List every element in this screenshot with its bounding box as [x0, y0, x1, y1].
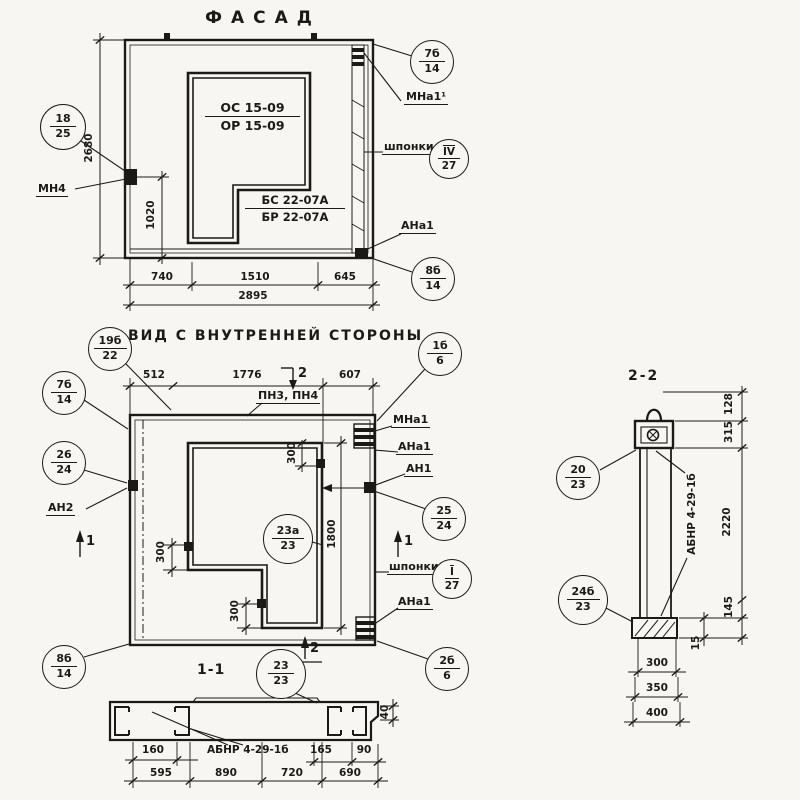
dim-s11-40: 40 [379, 698, 391, 726]
callout-23a-23: 23а 23 [263, 514, 313, 564]
label-pn3-pn4: ПН3, ПН4 [256, 390, 320, 404]
callout-2b-6: 2б 6 [425, 647, 469, 691]
lifting-loop-mark [311, 33, 317, 40]
an1-anchor-mark [364, 482, 374, 493]
label-mn4: МН4 [36, 183, 68, 197]
dim-inner-607: 607 [328, 369, 372, 381]
drawing-sheet: ФАСАД ОС 15-09 ОР 15-09 БС 22-07А БР 22-… [0, 0, 800, 800]
mark-bs: БС 22-07А [245, 193, 345, 209]
label-ana1-facade: АНа1 [399, 220, 436, 234]
dim-s11-160: 160 [136, 744, 170, 756]
dim-inner-300a: 300 [286, 437, 298, 469]
dim-s22-400: 400 [637, 707, 677, 719]
mark-br: БР 22-07А [245, 209, 345, 224]
section-mark-1-right: 1 [404, 534, 413, 549]
label-ana1-bottom-inner: АНа1 [396, 596, 433, 610]
section-22-title: 2-2 [628, 368, 659, 384]
section-11-title: 1-1 [197, 662, 225, 678]
inner-dimension-lines [123, 378, 380, 635]
callout-19b-22: 19б 22 [88, 327, 132, 371]
inner-leader-lines [84, 364, 428, 659]
label-mna1-sup: МНа1¹ [404, 91, 448, 105]
dim-facade-740: 740 [142, 271, 182, 283]
callout-24b-23: 24б 23 [558, 575, 608, 625]
label-abnr-s11: АБНР 4-29-1б [207, 745, 289, 757]
opening-mark-bs-br: БС 22-07А БР 22-07А [245, 193, 345, 224]
dim-s11-690: 690 [330, 767, 370, 779]
opening-mark-os-or: ОС 15-09 ОР 15-09 [205, 100, 300, 133]
section-11-geometry [110, 693, 378, 745]
lifting-loop-mark [164, 33, 170, 40]
anchor-mark [184, 542, 193, 551]
callout-keys-inner: I 27 [432, 559, 472, 599]
label-ana1-top-inner: АНа1 [396, 441, 433, 455]
dim-facade-645: 645 [323, 271, 367, 283]
mark-os: ОС 15-09 [205, 100, 300, 117]
callout-23-23: 23 23 [256, 649, 306, 699]
drawing-geometry [0, 0, 800, 800]
dim-s11-890: 890 [206, 767, 246, 779]
inner-view-title: ВИД С ВНУТРЕННЕЙ СТОРОНЫ [128, 328, 428, 344]
section-mark-2-bottom: 2 [310, 641, 319, 656]
dim-s11-595: 595 [141, 767, 181, 779]
dim-facade-2895: 2895 [228, 290, 278, 302]
label-shponki-facade: шпонки [382, 141, 436, 155]
facade-title: ФАСАД [198, 8, 328, 28]
label-an2: АН2 [46, 502, 75, 516]
dim-s11-165: 165 [304, 744, 338, 756]
callout-8b-14-facade: 8б 14 [411, 257, 455, 301]
label-mna1-inner: МНа1 [391, 414, 430, 428]
mark-or: ОР 15-09 [205, 117, 300, 133]
callout-7b-14-inner: 7б 14 [42, 371, 86, 415]
section-mark-1-left: 1 [86, 534, 95, 549]
dim-inner-512: 512 [134, 369, 174, 381]
anchor-mark [257, 599, 266, 608]
dim-facade-1510: 1510 [230, 271, 280, 283]
dim-inner-1776: 1776 [222, 369, 272, 381]
an2-anchor-mark [128, 480, 138, 491]
dim-s11-90: 90 [350, 744, 378, 756]
label-abnr-s22: АБНР 4-29-1б [686, 459, 698, 569]
section-22-geometry [600, 410, 687, 638]
dim-inner-300c: 300 [229, 595, 241, 627]
dim-inner-1800: 1800 [326, 512, 338, 556]
dim-s22-145: 145 [723, 591, 735, 623]
callout-8b-14-inner: 8б 14 [42, 645, 86, 689]
dim-s22-15: 15 [690, 629, 702, 657]
dim-inner-300b: 300 [155, 536, 167, 568]
callout-25-24: 25 24 [422, 497, 466, 541]
callout-20-23: 20 23 [556, 456, 600, 500]
mn4-anchor-mark [126, 169, 137, 185]
callout-keys-facade: IV 27 [429, 139, 469, 179]
callout-7b-14-facade: 7б 14 [410, 40, 454, 84]
dim-s22-350: 350 [638, 682, 676, 694]
dim-s22-2220: 2220 [721, 500, 733, 544]
callout-1b-6: 1б 6 [418, 332, 462, 376]
callout-18-25: 18 25 [40, 104, 86, 150]
label-an1: АН1 [404, 463, 433, 477]
dim-facade-1020: 1020 [145, 195, 157, 235]
dim-s22-300: 300 [639, 657, 675, 669]
dim-s11-720: 720 [272, 767, 312, 779]
dim-s22-315: 315 [723, 416, 735, 448]
anchor-mark [316, 459, 325, 468]
section-mark-2-top: 2 [298, 366, 307, 381]
callout-26-24: 26 24 [42, 441, 86, 485]
